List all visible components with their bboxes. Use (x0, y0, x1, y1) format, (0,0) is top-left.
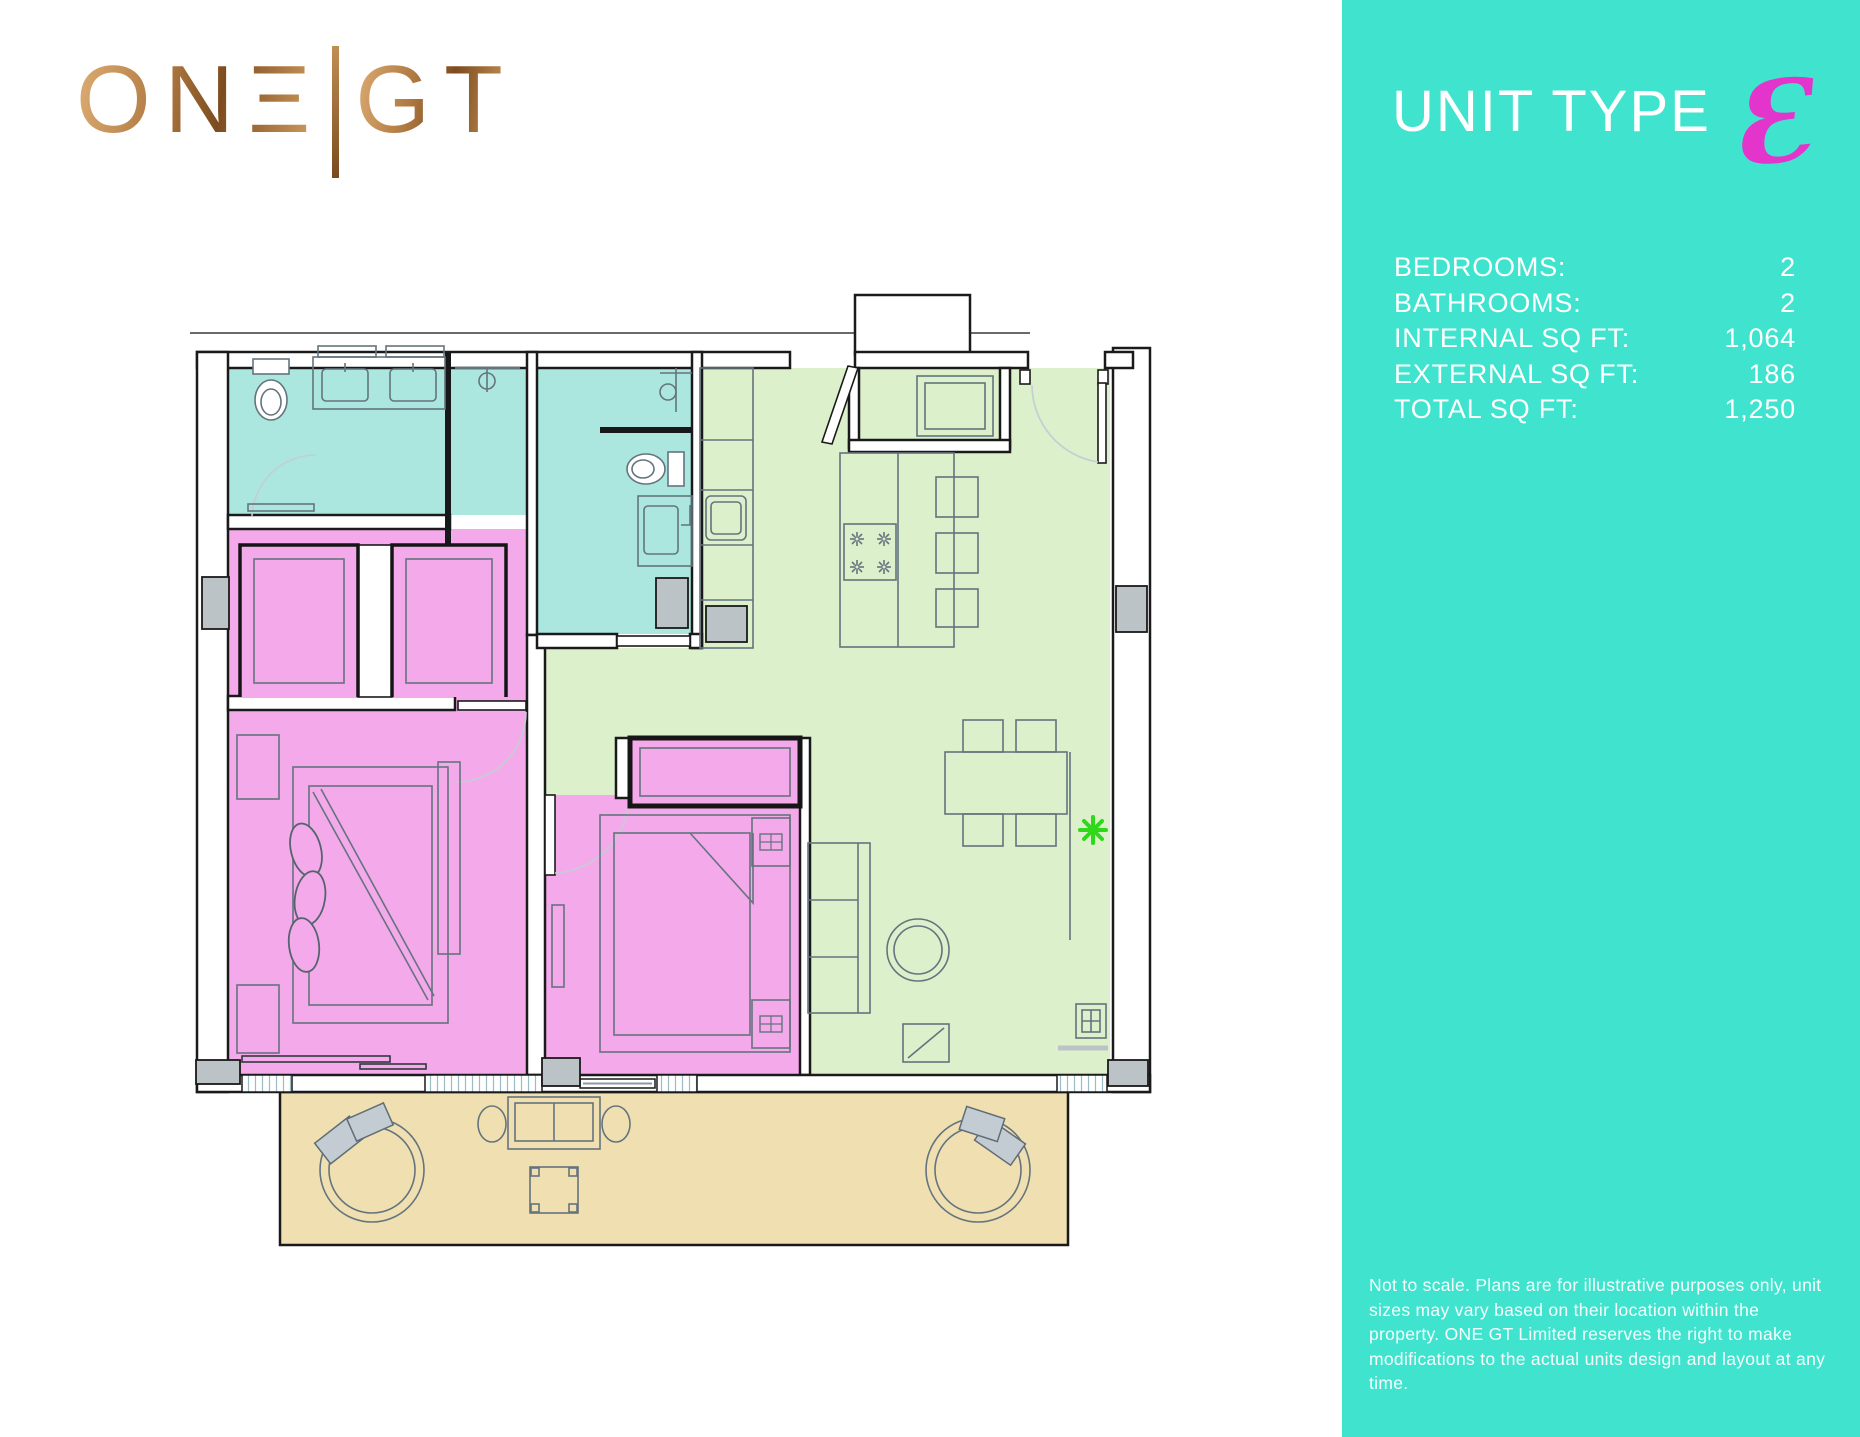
spec-label: INTERNAL SQ FT: (1394, 321, 1630, 357)
spec-value: 186 (1749, 357, 1796, 393)
spec-value: 2 (1780, 250, 1796, 286)
disclaimer-text: Not to scale. Plans are for illustrative… (1369, 1273, 1831, 1396)
logo-divider-bar (332, 46, 339, 178)
one-gt-logo: ONΞ GT (76, 52, 517, 178)
brochure-page: { "brand": { "logo_left": "ONΞ", "logo_d… (0, 0, 1860, 1437)
spec-value: 2 (1780, 286, 1796, 322)
top-shaft (855, 295, 970, 355)
unit-letter: Ɛ (1726, 70, 1819, 179)
bedroom-2-door (545, 795, 555, 875)
spec-row-external-sqft: EXTERNAL SQ FT: 186 (1394, 357, 1796, 393)
closet (392, 545, 506, 697)
unit-info-sidebar: UNIT TYPE Ɛ BEDROOMS: 2 BATHROOMS: 2 INT… (1342, 0, 1860, 1437)
bedroom-1-door (458, 701, 526, 710)
spec-label: TOTAL SQ FT: (1394, 392, 1579, 428)
logo-text-one: ONΞ (76, 52, 324, 148)
right-shaft (1113, 348, 1150, 1092)
spec-label: EXTERNAL SQ FT: (1394, 357, 1639, 393)
logo-text-gt: GT (355, 52, 516, 148)
bath-mat (656, 578, 688, 628)
terrace-floor (280, 1092, 1068, 1245)
spec-label: BATHROOMS: (1394, 286, 1582, 322)
spec-label: BEDROOMS: (1394, 250, 1566, 286)
spec-row-internal-sqft: INTERNAL SQ FT: 1,064 (1394, 321, 1796, 357)
wall-panel (202, 577, 229, 629)
shower-screen (600, 427, 692, 433)
spec-row-bathrooms: BATHROOMS: 2 (1394, 286, 1796, 322)
column (1116, 586, 1147, 632)
floor-plan (150, 280, 1170, 1260)
plant-icon (1080, 817, 1106, 843)
bathroom-2-door (617, 636, 690, 646)
spec-value: 1,250 (1724, 392, 1796, 428)
toilet-icon (255, 380, 287, 420)
unit-type-label: UNIT TYPE (1392, 78, 1711, 145)
hall-door-leaf (1098, 383, 1106, 463)
closet (240, 545, 358, 697)
unit-specs-list: BEDROOMS: 2 BATHROOMS: 2 INTERNAL SQ FT:… (1394, 250, 1796, 428)
bedroom-2-floor (545, 795, 800, 1075)
spec-value: 1,064 (1724, 321, 1796, 357)
appliance (706, 606, 747, 642)
unit-type-title: UNIT TYPE Ɛ (1392, 78, 1814, 175)
bathroom-1-floor (228, 352, 527, 515)
toilet-tank (253, 359, 289, 374)
toilet-tank (668, 452, 684, 486)
spec-row-total-sqft: TOTAL SQ FT: 1,250 (1394, 392, 1796, 428)
spec-row-bedrooms: BEDROOMS: 2 (1394, 250, 1796, 286)
